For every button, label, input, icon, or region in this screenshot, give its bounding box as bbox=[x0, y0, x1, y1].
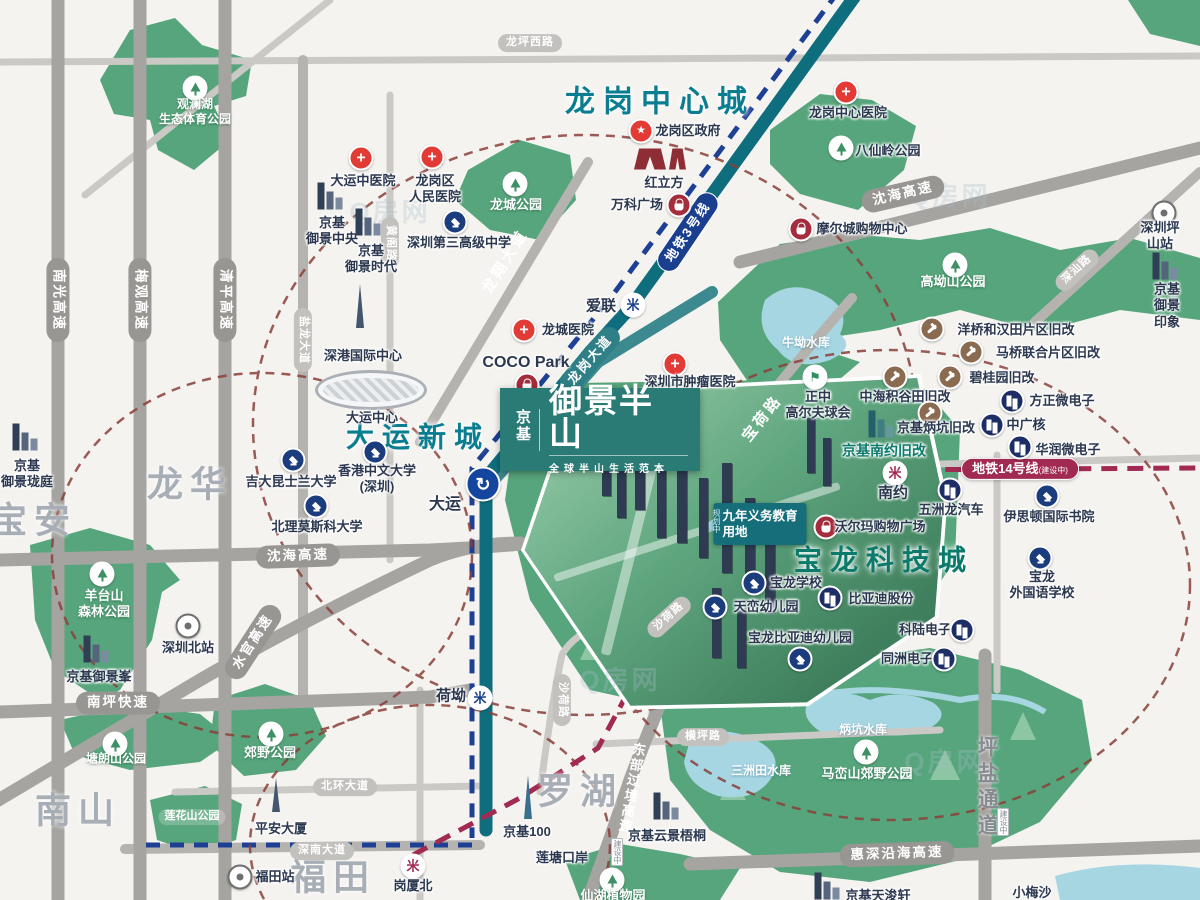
poi-jingji-yujing-feng: 京基御景峯 bbox=[66, 669, 131, 685]
company-icon bbox=[932, 647, 957, 672]
road-longpingxi: 龙坪西路 bbox=[498, 34, 562, 52]
project-tagline: 全球半山生活范本 bbox=[549, 460, 688, 475]
road-meiguan: 梅观高速 bbox=[129, 258, 152, 342]
poi-walmart-plaza: 沃尔玛购物广场 bbox=[834, 519, 925, 535]
poi-jingji-nanyue-renewal: 京基南约旧改 bbox=[842, 442, 926, 460]
school-icon bbox=[281, 448, 306, 473]
poi-guanlanhu-park: 观澜湖 生态体育公园 bbox=[159, 97, 231, 127]
poi-tongzhou-electronics: 同洲电子 bbox=[881, 651, 933, 667]
road-yanlong: 盐龙大道 bbox=[294, 308, 312, 372]
station-gangxiabei: 岗厦北 bbox=[393, 878, 432, 894]
area-longgang-center: 龙岗中心城 bbox=[565, 83, 755, 121]
district-nanshan: 南山 bbox=[35, 788, 121, 833]
project-banner: 京基 御景半山 全球半山生活范本 bbox=[500, 388, 700, 471]
school-icon bbox=[304, 494, 329, 519]
road-hengping: 横坪路 bbox=[677, 728, 729, 746]
golf-flag-icon bbox=[803, 365, 828, 390]
poi-moer-mall: 摩尔城购物中心 bbox=[816, 221, 907, 237]
kingkey-towers-icon bbox=[318, 183, 343, 210]
poi-crmicro: 华润微电子 bbox=[1035, 442, 1100, 458]
kingkey-towers-icon bbox=[869, 411, 894, 438]
poi-baolong-byd-kindergarten: 宝龙比亚迪幼儿园 bbox=[748, 630, 852, 646]
poi-pingan-tower: 平安大厦 bbox=[255, 821, 307, 837]
park-tree-icon bbox=[854, 740, 879, 765]
road-pingyan-tag: 建设中 bbox=[997, 808, 1009, 836]
hospital-icon bbox=[349, 146, 374, 171]
road-shenshan: 深汕路 bbox=[1052, 246, 1102, 294]
poi-yangqiao-hantian-renewal: 洋桥和汉田片区旧改 bbox=[957, 322, 1074, 338]
district-luohu: 罗湖 bbox=[537, 769, 623, 814]
line14-badge-text: 地铁14号线 bbox=[972, 461, 1038, 476]
metro-station-icon bbox=[401, 854, 426, 879]
poi-lianhuashan-park: 莲花山公园 bbox=[159, 809, 226, 825]
watermark: Q房网 bbox=[579, 664, 660, 697]
poi-jingji-tianjunxuan: 京基天浚轩 bbox=[845, 888, 910, 900]
poi-bit-moscow: 北理莫斯科大学 bbox=[271, 519, 362, 535]
road-beihuan: 北环大道 bbox=[313, 778, 377, 796]
station-dayun: 大运 bbox=[429, 495, 461, 515]
park-tree-icon bbox=[829, 136, 854, 161]
shopping-icon bbox=[667, 193, 692, 218]
district-longhua: 龙华 bbox=[147, 462, 233, 507]
poi-xiaomeisha: 小梅沙 bbox=[1012, 885, 1051, 900]
school-icon bbox=[363, 440, 388, 465]
park-tree-icon bbox=[503, 172, 528, 197]
road-huishen-coastal: 惠深沿海高速 bbox=[839, 841, 955, 868]
poi-tianluan-kindergarten: 天峦幼儿园 bbox=[733, 599, 798, 615]
poi-baolong-school: 宝龙学校 bbox=[770, 575, 822, 591]
school-icon bbox=[742, 571, 767, 596]
location-map: 京基 御景半山 全球半山生活范本 Q房网Q房网Q房网Q房网宝安龙华南山罗湖福田龙… bbox=[0, 0, 1200, 900]
road-nanguang: 南光高速 bbox=[47, 258, 70, 342]
district-baoan: 宝安 bbox=[0, 498, 77, 543]
kingkey-towers-icon bbox=[654, 793, 679, 820]
poi-jingji-yunjing-wutong: 京基云景梧桐 bbox=[628, 828, 706, 844]
poi-jlu-queensland: 吉大昆士兰大学 bbox=[245, 474, 336, 490]
spire-icon bbox=[524, 775, 532, 819]
metro-interchange-icon bbox=[466, 467, 501, 502]
station-futian: 福田站 bbox=[255, 869, 294, 885]
district-futian: 福田 bbox=[290, 855, 376, 900]
poi-jingji-yujing-impression: 京基 御景印象 bbox=[1151, 282, 1184, 331]
road-shahe-b: 沙荷路 bbox=[553, 674, 571, 726]
road-shennan: 深南大道 bbox=[290, 842, 354, 860]
edu-land-tag: 规划中 bbox=[712, 509, 720, 533]
poi-longcheng-park: 龙城公园 bbox=[490, 197, 542, 213]
metro-station-icon bbox=[468, 686, 493, 711]
poi-easton-academy: 伊思顿国际书院 bbox=[1003, 509, 1094, 525]
road-qingping: 清平高速 bbox=[214, 258, 237, 342]
poi-longcheng-hospital: 龙城医院 bbox=[542, 322, 594, 338]
kingkey-towers-icon bbox=[815, 873, 840, 900]
banner-divider bbox=[549, 455, 688, 456]
company-icon bbox=[1008, 435, 1033, 460]
rail-station-icon bbox=[176, 614, 201, 639]
metro-station-icon bbox=[621, 293, 646, 318]
stadium-icon bbox=[315, 370, 427, 410]
rail-station-icon bbox=[228, 865, 253, 890]
poi-biguiyuan-renewal: 碧桂园旧改 bbox=[969, 370, 1034, 386]
road-shuiguan: 水官高速 bbox=[221, 601, 286, 684]
project-brand: 京基 bbox=[512, 409, 540, 451]
station-heao: 荷坳 bbox=[436, 688, 466, 707]
project-name: 御景半山 bbox=[549, 384, 688, 450]
hospital-icon bbox=[420, 145, 445, 170]
station-shenzhen-north: 深圳北站 bbox=[162, 640, 214, 656]
station-ailian: 爱联 bbox=[586, 298, 616, 317]
poi-cgn: 中广核 bbox=[1006, 417, 1045, 433]
poi-kingkey100: 京基100 bbox=[503, 824, 551, 840]
poi-yangtaishan-park: 羊台山 森林公园 bbox=[78, 588, 130, 621]
government-star-icon bbox=[629, 119, 654, 144]
renewal-gavel-icon bbox=[920, 317, 945, 342]
spire-icon bbox=[272, 778, 280, 812]
poi-liantang-port: 莲塘口岸 bbox=[536, 850, 588, 866]
red-cube-icon bbox=[634, 149, 686, 170]
poi-xianhu-garden: 仙湖植物园 bbox=[580, 888, 645, 900]
poi-baolong-foreign-school: 宝龙 外国语学校 bbox=[1009, 569, 1074, 602]
poi-maqiao-renewal: 马桥联合片区旧改 bbox=[996, 345, 1100, 361]
kingkey-towers-icon bbox=[84, 636, 109, 663]
poi-honglifang: 红立方 bbox=[644, 175, 683, 191]
company-icon bbox=[950, 618, 975, 643]
road-pingyan: 坪盐通道 bbox=[973, 736, 999, 840]
poi-gaoaoshan-park: 高坳山公园 bbox=[920, 274, 985, 290]
company-icon bbox=[938, 478, 963, 503]
poi-kelu-electronics: 科陆电子 bbox=[899, 622, 951, 638]
poi-jingji-yujing-era: 京基 御景时代 bbox=[345, 243, 397, 276]
poi-longgang-central-hospital: 龙岗中心医院 bbox=[809, 105, 887, 121]
lake-niuao: 牛坳水库 bbox=[782, 336, 830, 351]
hospital-icon bbox=[512, 318, 537, 343]
station-shenzhen-pingshan: 深圳坪山站 bbox=[1140, 220, 1180, 253]
park-tree-icon bbox=[90, 562, 115, 587]
school-icon bbox=[788, 647, 813, 672]
lake-bingkeng: 炳坑水库 bbox=[839, 723, 887, 738]
company-icon bbox=[980, 413, 1005, 438]
road-shenhai-mid: 沈海高速 bbox=[256, 543, 341, 569]
poi-jingji-yujing-longting: 京基 御景珑庭 bbox=[1, 458, 53, 491]
edu-land-badge: 九年义务教育 用地 bbox=[713, 503, 806, 545]
school-icon bbox=[1035, 484, 1060, 509]
station-nanyue: 南约 bbox=[878, 485, 908, 504]
road-dongbu-tag: 建设中 bbox=[611, 838, 623, 866]
metro-station-icon bbox=[883, 461, 908, 486]
kingkey-towers-icon bbox=[356, 209, 381, 236]
company-icon bbox=[1000, 389, 1025, 414]
poi-wuzhoulong: 五洲龙汽车 bbox=[918, 502, 983, 518]
poi-tanglangshan-park: 塘朗山公园 bbox=[86, 752, 146, 767]
park-tree-icon bbox=[259, 722, 284, 747]
renewal-gavel-icon bbox=[883, 365, 908, 390]
spire-icon bbox=[356, 284, 364, 328]
school-icon bbox=[1028, 546, 1053, 571]
school-icon bbox=[443, 210, 468, 235]
hospital-icon bbox=[834, 80, 859, 105]
poi-vanke-plaza: 万科广场 bbox=[611, 197, 663, 213]
poi-baxianling-park: 八仙岭公园 bbox=[855, 143, 920, 159]
renewal-gavel-icon bbox=[938, 365, 963, 390]
poi-jiaoye-park: 郊野公园 bbox=[244, 745, 296, 761]
road-shahe-a: 沙荷路 bbox=[644, 593, 695, 641]
kingkey-towers-icon bbox=[13, 424, 38, 451]
hospital-icon bbox=[663, 352, 688, 377]
poi-no3-high-school: 深圳第三高级中学 bbox=[407, 235, 511, 251]
kingkey-towers-icon bbox=[1153, 253, 1178, 280]
poi-longgang-peoples-hospital: 龙岗区 人民医院 bbox=[409, 173, 461, 206]
area-baolong-tech: 宝龙科技城 bbox=[794, 543, 974, 578]
road-baohe: 宝荷路 bbox=[739, 392, 787, 446]
renewal-gavel-icon bbox=[959, 340, 984, 365]
company-icon bbox=[818, 586, 843, 611]
line14-badge-subtext: (建设中) bbox=[1039, 466, 1068, 475]
shopping-icon bbox=[789, 217, 814, 242]
poi-cuhk-shenzhen: 香港中文大学 (深圳) bbox=[338, 463, 416, 496]
poi-byd: 比亚迪股份 bbox=[848, 591, 913, 607]
poi-dayun-center: 大运中心 bbox=[346, 410, 398, 426]
poi-maluanshan-park: 马峦山郊野公园 bbox=[821, 766, 912, 782]
lake-sanzhoutian: 三洲田水库 bbox=[731, 764, 791, 779]
road-nanping: 南坪快速 bbox=[76, 692, 160, 715]
poi-longgang-government: 龙岗区政府 bbox=[655, 123, 720, 139]
poi-jingji-bingkeng-renewal: 京基炳坑旧改 bbox=[897, 420, 975, 436]
poi-shengang-intl-center: 深港国际中心 bbox=[324, 348, 402, 364]
metro-line14-badge: 地铁14号线(建设中) bbox=[961, 458, 1079, 480]
poi-zhengzhong-golf: 正中 高尔夫球会 bbox=[785, 389, 850, 422]
poi-coco-park: COCO Park bbox=[482, 353, 569, 373]
poi-founder-micro: 方正微电子 bbox=[1029, 393, 1094, 409]
school-icon bbox=[703, 595, 728, 620]
